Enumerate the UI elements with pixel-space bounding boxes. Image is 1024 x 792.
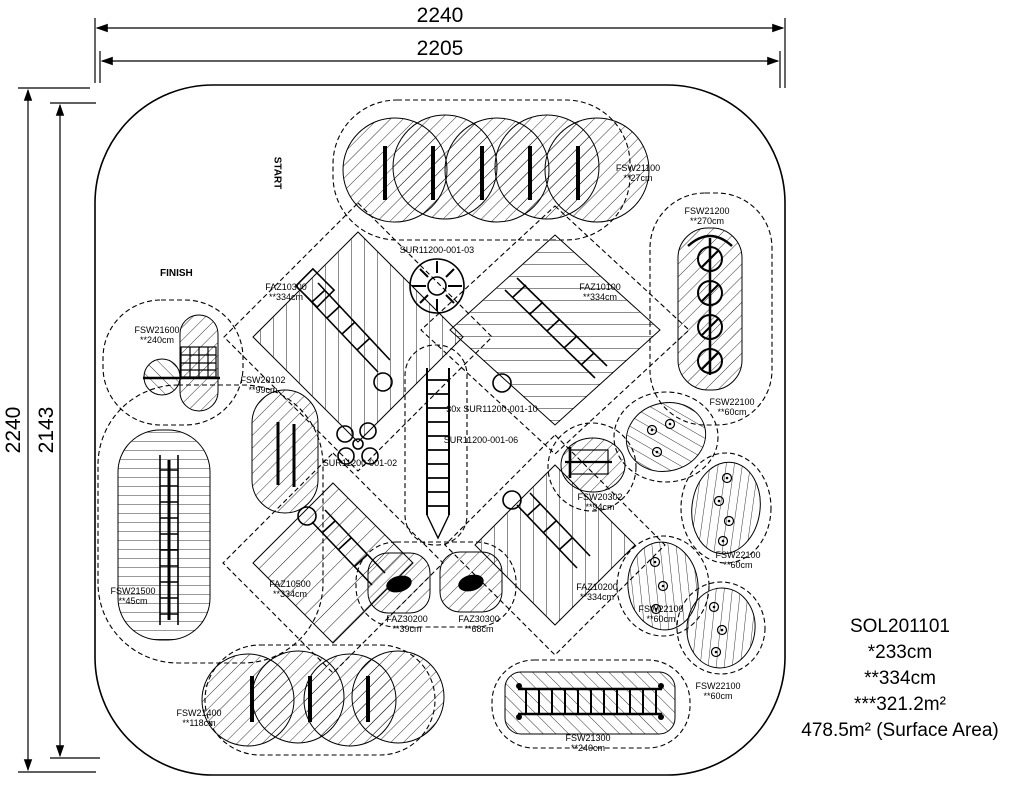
equipment-code: FSW21300 (565, 733, 610, 743)
equipment-code: SUR11200-001-06 (444, 435, 518, 445)
equipment-label: SUR11200-001-02 (323, 458, 397, 468)
dim-left-outer: 2240 (2, 407, 26, 454)
product-star3: ***321.2m² (775, 692, 1024, 718)
equipment-fsw21200 (678, 228, 742, 390)
equipment-label: FSW20102**99cm (240, 375, 285, 395)
product-summary: SOL201101 *233cm **334cm ***321.2m² 478.… (775, 614, 1024, 744)
dim-top-inner: 2205 (417, 37, 464, 61)
dim-left-inner: 2143 (35, 407, 59, 454)
equipment-value: **27cm (616, 173, 660, 183)
equipment-code: FAZ30200 (386, 614, 428, 624)
equipment-code: FAZ10300 (265, 282, 307, 292)
equipment-label: FAZ10300**334cm (265, 282, 307, 302)
equipment-value: **60cm (695, 691, 740, 701)
equipment-label: FSW21200**270cm (684, 206, 729, 226)
equipment-code: FSW20102 (240, 375, 285, 385)
equipment-label: 30x SUR11200-001-10 (446, 404, 537, 414)
equipment-code: SUR11200-001-03 (400, 245, 474, 255)
equipment-value: **118cm (176, 718, 221, 728)
equipment-label: FAZ10100**334cm (579, 282, 621, 302)
equipment-code: 30x SUR11200-001-10 (446, 404, 537, 414)
equipment-label: FSW22100**60cm (715, 550, 760, 570)
equipment-code: FSW20302 (577, 492, 622, 502)
equipment-value: **99cm (240, 385, 285, 395)
equipment-code: FSW21600 (134, 325, 179, 335)
equipment-code: FSW22100 (638, 604, 683, 614)
equipment-label: FSW22100**60cm (709, 397, 754, 417)
equipment-code: FAZ30300 (458, 614, 500, 624)
equipment-label: FSW21100**27cm (616, 163, 660, 183)
equipment-code: FSW21500 (110, 586, 155, 596)
product-code: SOL201101 (775, 614, 1024, 640)
equipment-value: **68cm (458, 624, 500, 634)
playground-plan-canvas: 2240 2205 2240 2143 START FINISH FSW2110… (0, 0, 1024, 792)
equipment-code: FAZ10500 (269, 579, 311, 589)
equipment-code: FAZ10100 (579, 282, 621, 292)
equipment-value: **334cm (576, 592, 618, 602)
equipment-value: **270cm (684, 216, 729, 226)
equipment-label: FSW22100**60cm (638, 604, 683, 624)
equipment-value: **45cm (110, 596, 155, 606)
equipment-value: **60cm (709, 407, 754, 417)
equipment-value: **240cm (565, 743, 610, 753)
equipment-code: FSW21100 (616, 163, 660, 173)
product-star1: *233cm (775, 640, 1024, 666)
equipment-label: FSW21500**45cm (110, 586, 155, 606)
equipment-value: **240cm (134, 335, 179, 345)
equipment-code: FSW21400 (176, 708, 221, 718)
equipment-value: **334cm (579, 292, 621, 302)
equipment-value: **60cm (638, 614, 683, 624)
equipment-fsw21300 (505, 672, 675, 734)
equipment-code: FSW22100 (695, 681, 740, 691)
equipment-value: **60cm (715, 560, 760, 570)
finish-marker: FINISH (160, 268, 193, 279)
equipment-label: FSW21300**240cm (565, 733, 610, 753)
equipment-value: **94cm (577, 502, 622, 512)
dim-top-outer: 2240 (417, 4, 464, 28)
product-star2: **334cm (775, 666, 1024, 692)
equipment-value: **334cm (269, 589, 311, 599)
equipment-value: **334cm (265, 292, 307, 302)
equipment-label: FAZ10200**334cm (576, 582, 618, 602)
equipment-fsw20102 (252, 390, 318, 513)
equipment-label: SUR11200-001-03 (400, 245, 474, 255)
equipment-label: FAZ30200**39cm (386, 614, 428, 634)
equipment-label: FSW21400**118cm (176, 708, 221, 728)
equipment-code: SUR11200-001-02 (323, 458, 397, 468)
equipment-label: FSW22100**60cm (695, 681, 740, 701)
equipment-code: FSW22100 (709, 397, 754, 407)
equipment-code: FAZ10200 (576, 582, 618, 592)
equipment-label: FSW20302**94cm (577, 492, 622, 512)
equipment-label: FAZ10500**334cm (269, 579, 311, 599)
equipment-code: FSW21200 (684, 206, 729, 216)
equipment-faz30200 (368, 553, 430, 613)
equipment-code: FSW22100 (715, 550, 760, 560)
equipment-fsw21500 (118, 430, 210, 640)
product-surface: 478.5m² (Surface Area) (775, 718, 1024, 744)
equipment-label: SUR11200-001-06 (444, 435, 518, 445)
equipment-value: **39cm (386, 624, 428, 634)
equipment-fsw21100 (343, 115, 649, 222)
start-marker: START (272, 157, 283, 190)
equipment-fsw21400 (202, 651, 444, 746)
equipment-faz30300 (440, 552, 502, 612)
equipment-label: FSW21600**240cm (134, 325, 179, 345)
equipment-label: FAZ30300**68cm (458, 614, 500, 634)
